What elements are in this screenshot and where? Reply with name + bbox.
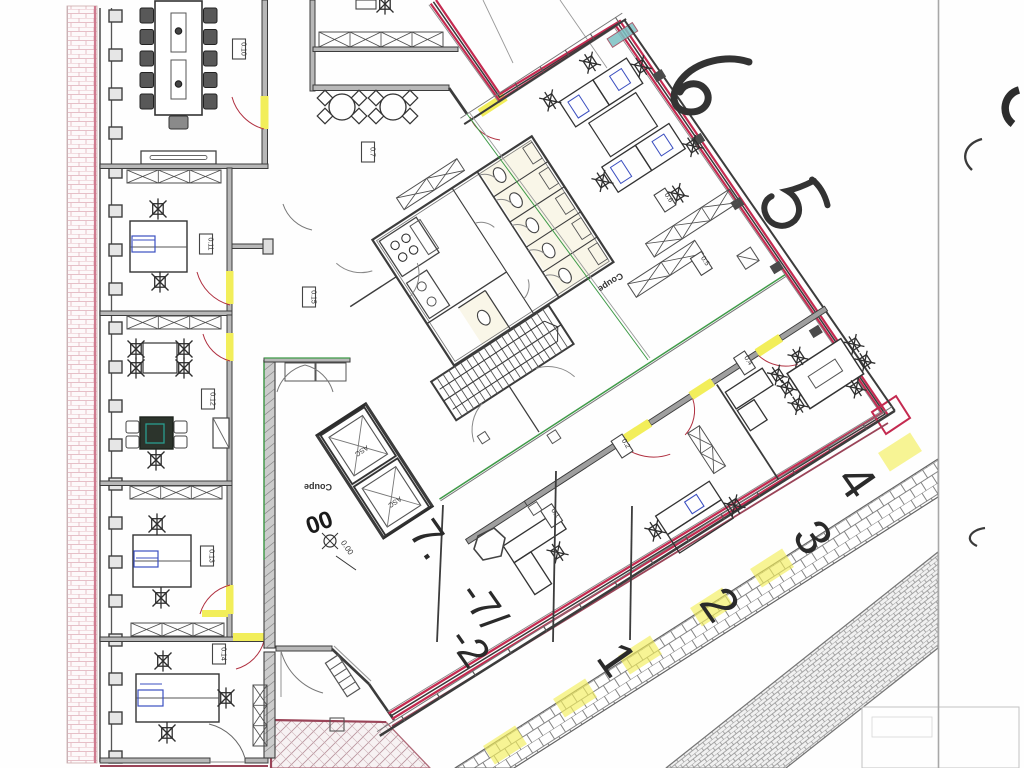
svg-text:0.7: 0.7 <box>369 147 376 157</box>
svg-text:0.15: 0.15 <box>310 290 317 304</box>
svg-text:0.10: 0.10 <box>240 42 247 56</box>
svg-text:Coupe: Coupe <box>304 482 332 492</box>
svg-text:0.12: 0.12 <box>209 392 216 406</box>
svg-text:0.11: 0.11 <box>207 237 214 250</box>
svg-text:0.13: 0.13 <box>208 549 215 563</box>
svg-text:0.14: 0.14 <box>220 647 227 661</box>
